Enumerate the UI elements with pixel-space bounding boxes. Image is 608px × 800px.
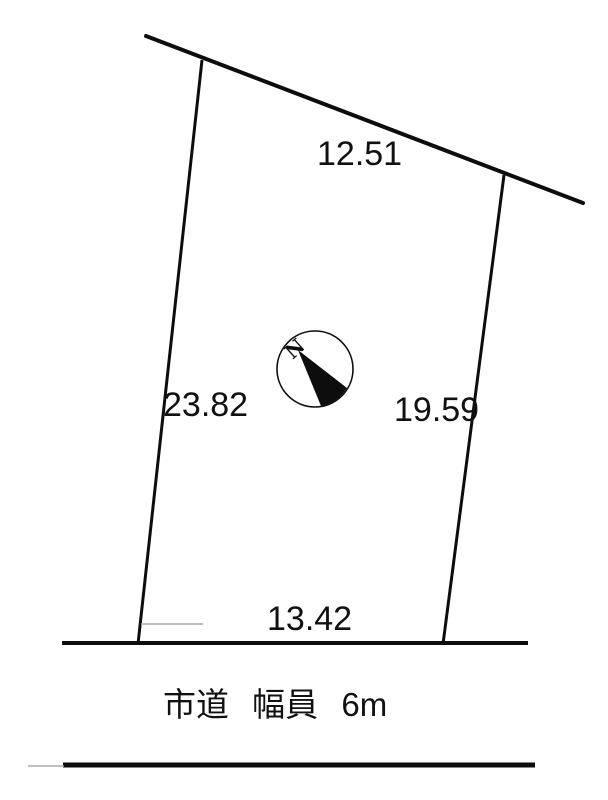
- dimension-label-bottom: 13.42: [267, 602, 352, 636]
- boundary-left-line: [138, 60, 202, 644]
- road-caption: 市道 幅員 6m: [163, 687, 387, 723]
- plot-diagram: N 12.51 23.82 19.59 13.42 市道 幅員 6m: [0, 0, 608, 800]
- dimension-label-left: 23.82: [163, 388, 248, 422]
- north-compass-icon: N: [277, 331, 353, 407]
- plot-drawing: N: [0, 0, 608, 800]
- dimension-label-right: 19.59: [394, 393, 479, 427]
- dimension-label-top: 12.51: [317, 137, 402, 171]
- boundary-top-line: [146, 36, 583, 203]
